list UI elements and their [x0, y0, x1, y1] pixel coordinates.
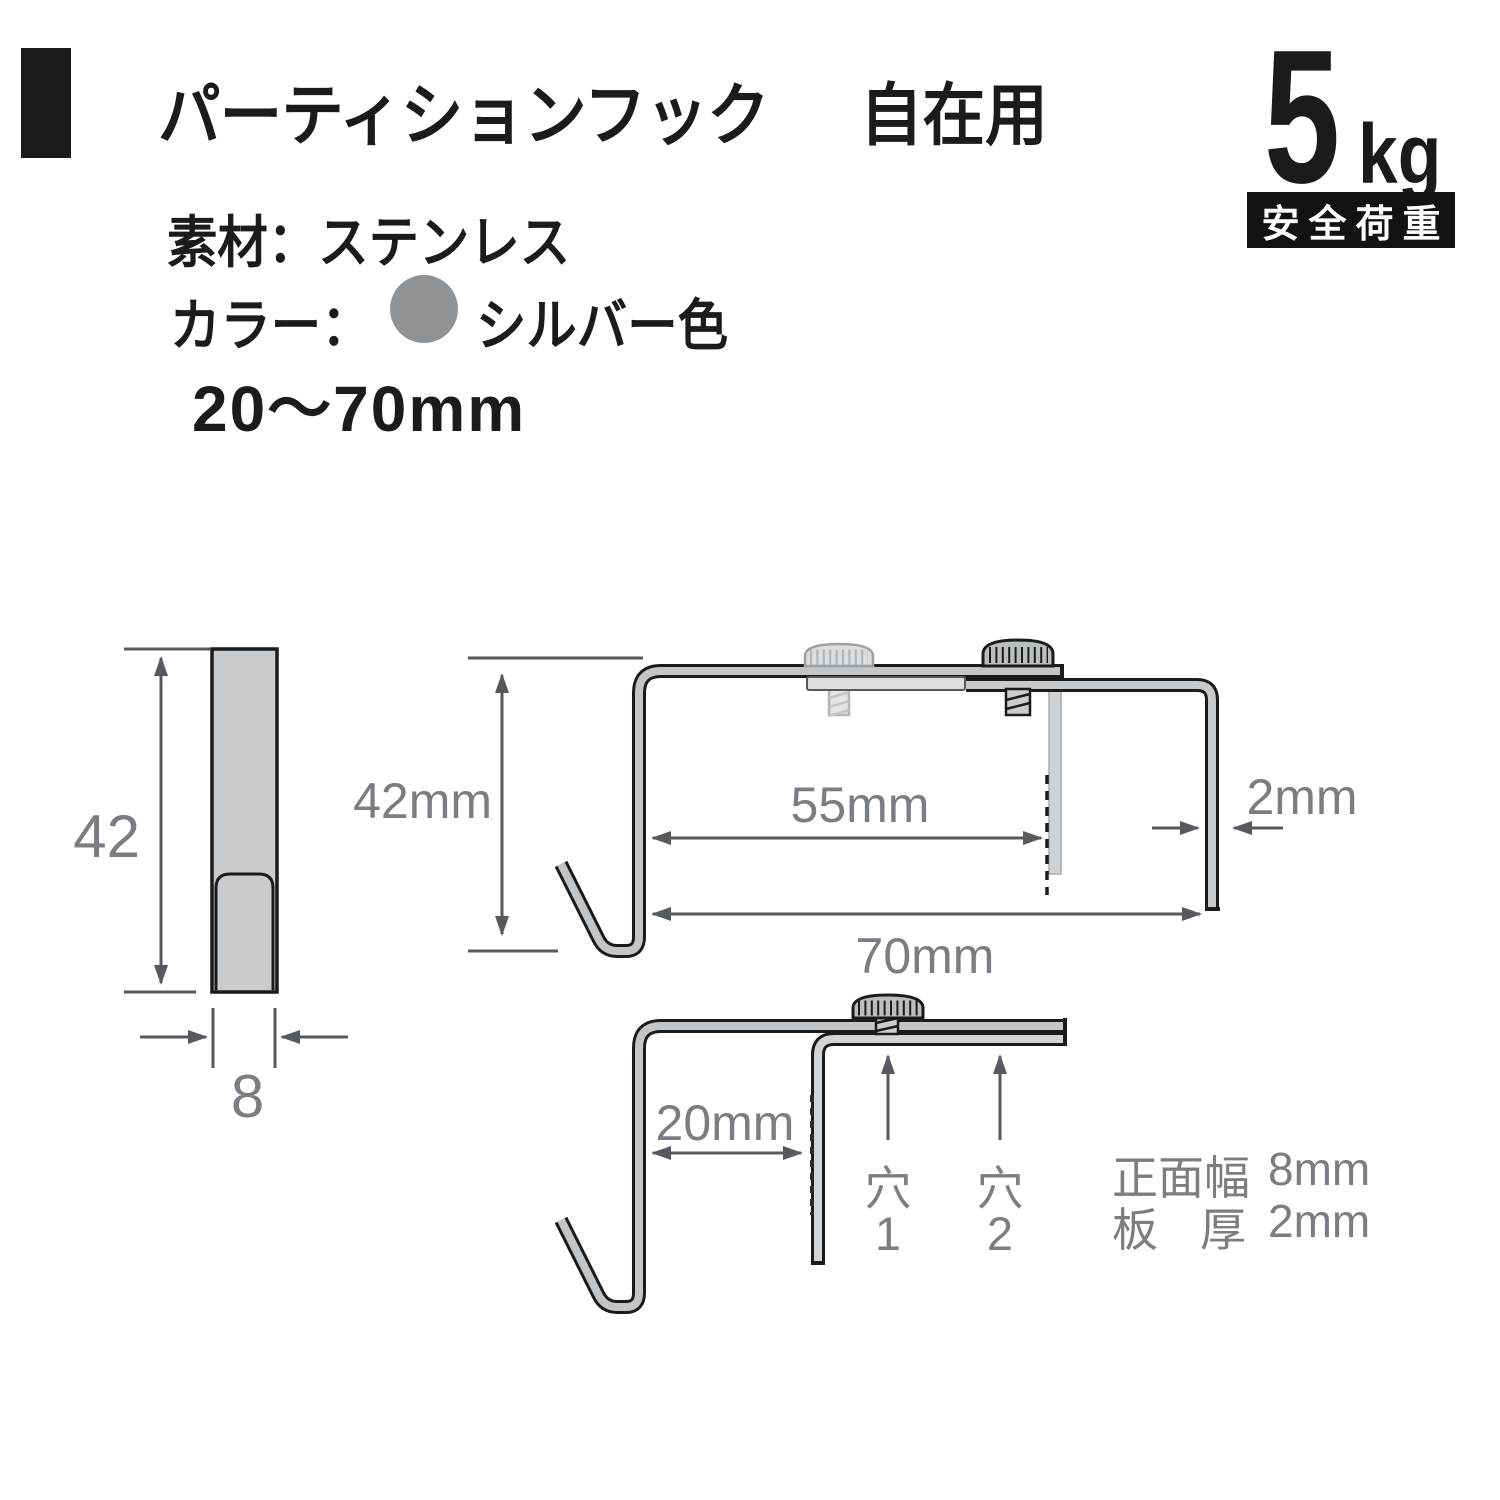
leg-end-cap: [1205, 907, 1220, 911]
slider-plate: [807, 677, 965, 690]
slider-outline: [818, 1039, 1066, 1264]
product-spec-sheet: パーティションフック 自在用 5 kg 安全荷重 素材：ステンレス カラー： シ…: [0, 0, 1500, 1500]
bar-end-cap: [1060, 664, 1064, 679]
hook-body-fill: [561, 671, 1063, 951]
slider-leg-end-cap: [811, 1261, 825, 1265]
side-view-max-diagram: [468, 640, 1283, 951]
slider-arm-fill: [966, 685, 1212, 909]
slider-fill: [818, 1039, 1066, 1264]
thumbscrew2-cap: [983, 640, 1053, 666]
front-view-diagram: [124, 649, 348, 1068]
technical-drawing-canvas: [0, 0, 1500, 1500]
thumbscrew-cap: [853, 995, 923, 1018]
side-view-min-dimensions: [653, 1056, 1000, 1153]
thumbscrew2-shaft: [1006, 689, 1030, 715]
bars-end-cap: [1063, 1018, 1067, 1046]
slider-arm-outline: [966, 685, 1212, 909]
hook-front-tip: [216, 874, 273, 990]
slider-leg-hidden: [1049, 686, 1061, 874]
side-view-min-diagram: [561, 995, 1067, 1307]
thumbscrew1-cap: [805, 644, 873, 666]
